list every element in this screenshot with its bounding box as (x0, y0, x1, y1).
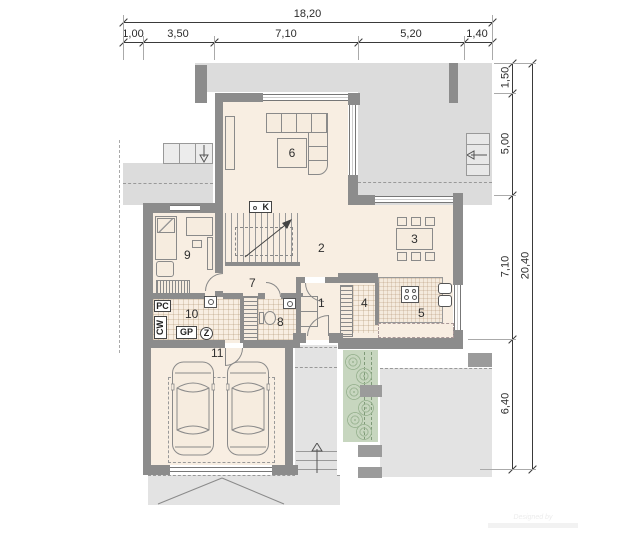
witness-line (494, 63, 536, 64)
bed-pillow (157, 218, 175, 233)
dim-top-seg-label: 7,10 (275, 29, 296, 40)
garage-door-line (170, 467, 272, 472)
dim-top-seg-label: 1,40 (466, 29, 487, 40)
kitchen-counter (378, 323, 454, 338)
terrace-column (449, 63, 458, 103)
fern-icon (356, 368, 372, 384)
side-table (192, 240, 202, 248)
z-label: Z (204, 329, 210, 338)
room-number-11: 11 (211, 347, 223, 359)
driveway (148, 475, 340, 505)
exterior-steps-terrace (466, 133, 490, 176)
terrace-dash-line (358, 182, 492, 183)
wall (348, 175, 358, 205)
room-number-5: 5 (418, 307, 425, 319)
stove (401, 286, 419, 303)
wall (243, 340, 300, 348)
dim-right-total-line (532, 63, 533, 469)
window-room9-north (170, 205, 200, 211)
property-line (119, 140, 120, 353)
car (226, 358, 270, 458)
window-living-east (349, 105, 356, 175)
coffee-table: 6 (277, 138, 307, 168)
fireplace-label: K (263, 203, 270, 212)
wc-sink-bowl (287, 301, 293, 307)
armchair (156, 261, 174, 277)
arrow-up-icon (309, 443, 325, 475)
room-number-4: 4 (361, 297, 368, 309)
watermark: Designed by (488, 514, 578, 528)
gp-unit: GP (176, 326, 197, 339)
pantry-shelves (340, 285, 353, 337)
stairs-base-wall (225, 262, 300, 266)
terrace-left-dash-line (123, 183, 213, 184)
exterior-step-block (468, 353, 492, 367)
wall (338, 273, 378, 283)
chair (397, 217, 407, 226)
witness-line (494, 93, 516, 94)
dim-top-total-line (123, 22, 492, 23)
wall (215, 102, 223, 203)
built-in-wardrobe (243, 296, 258, 343)
pc-unit: PC (154, 300, 171, 312)
dining-table: 3 (396, 228, 433, 250)
room-number-2: 2 (318, 242, 325, 254)
washer-drum (208, 299, 214, 305)
wall (143, 213, 153, 348)
fireplace-dot (253, 206, 257, 210)
dim-top-seg-label: 5,20 (400, 29, 421, 40)
step-line (179, 144, 180, 163)
path-dash (295, 347, 337, 348)
wall (375, 283, 379, 325)
chair (425, 252, 435, 261)
wall-corner (143, 465, 170, 475)
chair (411, 217, 421, 226)
car (171, 358, 215, 458)
roof-overhang-top (195, 63, 492, 92)
wall (358, 195, 375, 205)
wall (325, 277, 338, 283)
wall (453, 330, 463, 340)
wc-sink (283, 298, 296, 309)
chair (425, 217, 435, 226)
wardrobe-room9 (156, 280, 190, 294)
witness-line (468, 339, 516, 340)
wall-corner (272, 465, 298, 475)
witness-line (358, 36, 359, 60)
chimney-column (195, 65, 207, 103)
witness-line (123, 15, 124, 60)
terrace-left (123, 163, 213, 205)
chair (397, 252, 407, 261)
witness-line (494, 195, 516, 196)
burner (404, 295, 409, 300)
room-number-7: 7 (249, 277, 256, 289)
wall (285, 348, 293, 475)
wall (338, 338, 463, 349)
witness-line (480, 469, 536, 470)
room-number-1: 1 (318, 297, 325, 309)
wall-corner (348, 93, 360, 105)
step-line (195, 144, 196, 163)
burner (405, 289, 409, 293)
wall (215, 203, 223, 273)
watermark-line1: Designed by (488, 514, 578, 521)
room-number-9: 9 (184, 249, 191, 261)
witness-line (492, 15, 493, 60)
washer (204, 296, 217, 308)
witness-line (464, 36, 465, 60)
step-line (467, 144, 489, 145)
fern-icon (356, 424, 372, 440)
dim-right-seg-label: 6,40 (501, 384, 512, 424)
arrow-left-icon (467, 149, 489, 161)
pc-label: PC (156, 302, 169, 311)
watermark-line2 (488, 523, 578, 528)
floor-plan-canvas: K 6 3 PC (0, 0, 638, 556)
dim-top-seg-line (123, 42, 492, 43)
wall (143, 348, 151, 475)
wall (296, 277, 305, 283)
path-dash (295, 367, 337, 368)
sink-basin (438, 295, 452, 307)
sofa-top (266, 113, 328, 133)
kitchen-sink (438, 283, 453, 308)
dim-right-seg-label: 7,10 (501, 247, 512, 287)
window-kitchen-east (454, 285, 461, 330)
wall (215, 93, 263, 102)
garden-block (358, 445, 382, 457)
witness-line (143, 36, 144, 60)
exterior-steps-left (163, 143, 213, 164)
gp-label: GP (180, 328, 193, 337)
cw-unit: CW (154, 316, 167, 339)
garden-block (360, 385, 382, 397)
wall (329, 333, 343, 343)
dim-right-seg-line (512, 63, 513, 469)
sink-basin (438, 283, 452, 294)
dim-top-total-label: 18,20 (123, 9, 492, 20)
step-line (467, 164, 489, 165)
burner (412, 289, 416, 293)
witness-line (214, 36, 215, 60)
side-yard (380, 368, 492, 477)
room-number-8: 8 (277, 316, 284, 328)
shelf-living (225, 116, 235, 170)
chair (411, 252, 421, 261)
side-yard-dash (380, 368, 492, 369)
arrow-down-icon (197, 145, 211, 163)
staircase (225, 213, 300, 262)
window-dining-north (375, 196, 453, 203)
wall (453, 193, 463, 285)
fireplace-box: K (249, 201, 272, 213)
dim-top-seg-label: 3,50 (167, 29, 188, 40)
burner (412, 295, 417, 300)
room-number-3: 3 (411, 233, 418, 245)
toilet-bowl (264, 311, 276, 325)
z-unit: Z (200, 327, 213, 340)
room-number-6: 6 (289, 147, 296, 159)
entry-steps (296, 443, 337, 476)
desk (186, 217, 213, 236)
dim-top-seg-label: 1,00 (122, 29, 143, 40)
sofa-right (308, 132, 328, 175)
cw-label: CW (156, 320, 165, 335)
dim-right-total-label: 20,40 (521, 246, 532, 286)
stairs-direction-arrow (225, 213, 300, 262)
room-number-10: 10 (185, 308, 198, 320)
wall (258, 293, 265, 299)
garden-block (358, 467, 382, 478)
dim-right-seg-label: 5,00 (501, 124, 512, 164)
shelf-room9 (207, 237, 213, 270)
window-living-north (263, 94, 348, 101)
fern-icon (345, 354, 361, 370)
driveway-slope-lines (148, 476, 340, 506)
